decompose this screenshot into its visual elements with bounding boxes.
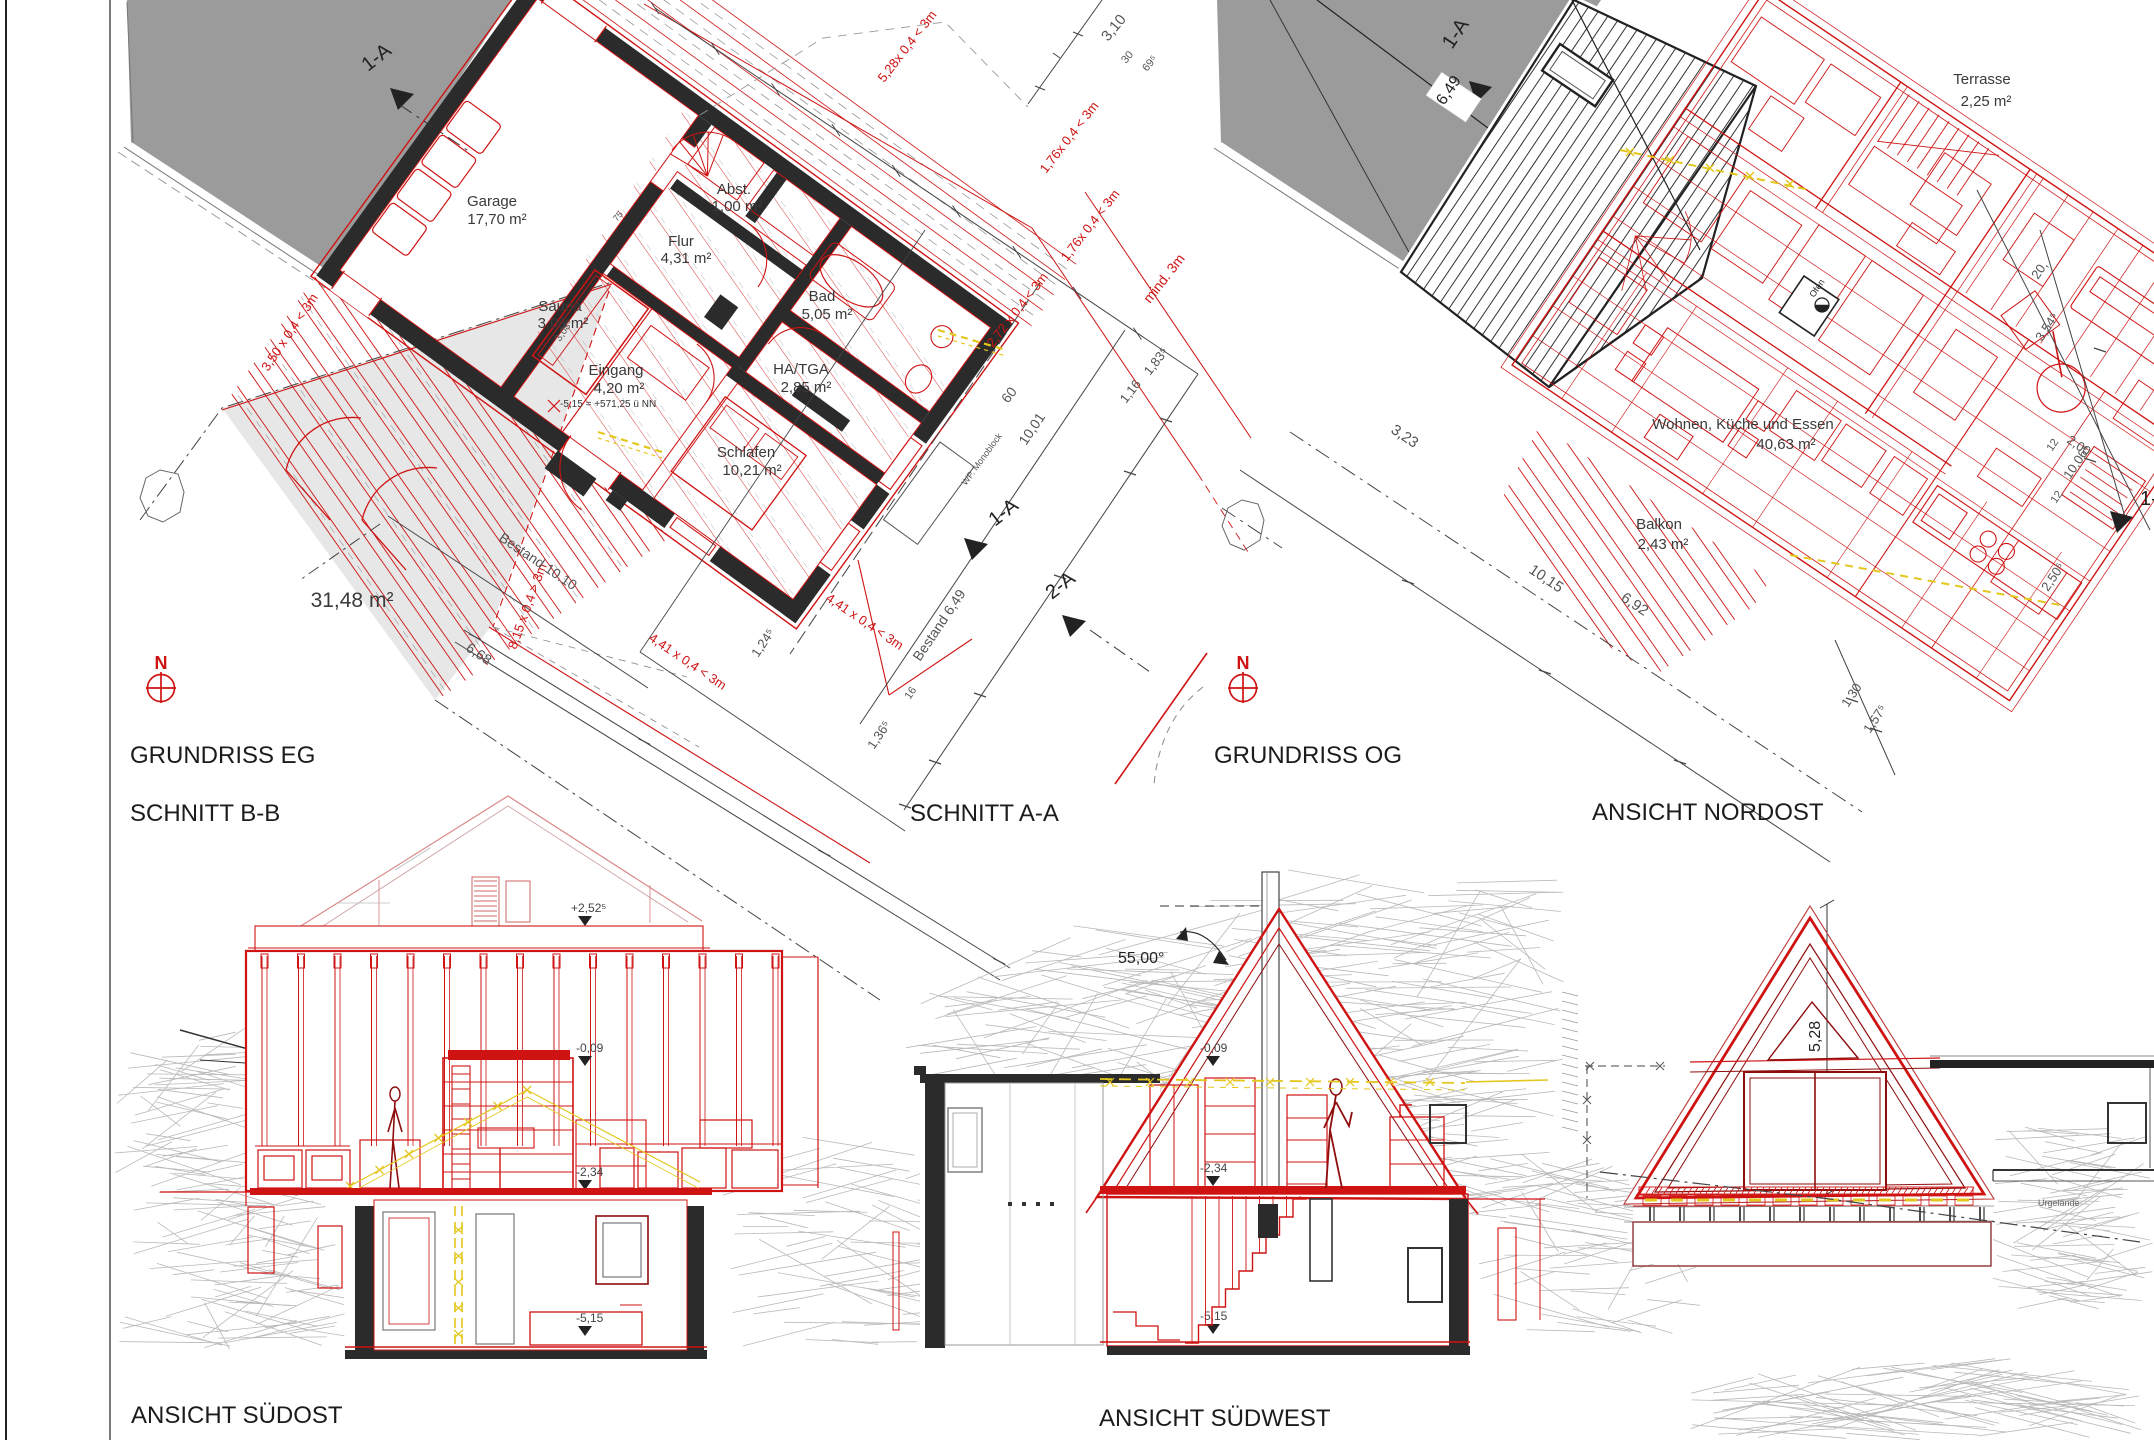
svg-text:N: N [155,653,168,673]
svg-text:-5,15 = +571,25 ü NN: -5,15 = +571,25 ü NN [560,399,656,410]
svg-text:-2,34: -2,34 [1200,1161,1228,1175]
svg-text:-5,15: -5,15 [1200,1309,1228,1323]
svg-text:Abst.: Abst. [717,181,751,198]
svg-text:HA/TGA: HA/TGA [773,361,829,378]
svg-text:2,25 m²: 2,25 m² [1961,93,2012,110]
svg-text:40,63 m²: 40,63 m² [1756,436,1815,453]
svg-text:17,70 m²: 17,70 m² [467,211,526,228]
svg-text:Balkon: Balkon [1636,516,1682,533]
svg-text:Garage: Garage [467,193,517,210]
svg-text:ANSICHT SÜDWEST: ANSICHT SÜDWEST [1099,1405,1331,1432]
svg-text:ANSICHT NORDOST: ANSICHT NORDOST [1592,799,1824,826]
svg-text:GRUNDRISS OG: GRUNDRISS OG [1214,742,1402,769]
svg-text:-0,09: -0,09 [1200,1041,1228,1055]
svg-text:4,20 m²: 4,20 m² [594,380,645,397]
svg-text:4,31 m²: 4,31 m² [661,250,712,267]
svg-text:2,85 m²: 2,85 m² [781,379,832,396]
svg-text:+2,52⁵: +2,52⁵ [571,901,606,915]
svg-text:5,05 m²: 5,05 m² [802,306,853,323]
svg-text:Eingang: Eingang [588,362,643,379]
svg-text:Terrasse: Terrasse [1953,71,2011,88]
svg-text:N: N [1237,653,1250,673]
svg-text:-5,15: -5,15 [576,1311,604,1325]
svg-text:10,21 m²: 10,21 m² [722,462,781,479]
svg-text:5,28: 5,28 [1807,1021,1824,1052]
svg-text:Urgelände: Urgelände [2038,1198,2080,1208]
svg-text:ANSICHT SÜDOST: ANSICHT SÜDOST [131,1402,343,1429]
svg-text:Sauna: Sauna [538,298,582,315]
svg-text:GRUNDRISS EG: GRUNDRISS EG [130,742,315,769]
svg-text:Flur: Flur [668,233,694,250]
svg-text:1,00 m²: 1,00 m² [712,198,763,215]
svg-text:SCHNITT B-B: SCHNITT B-B [130,800,280,827]
svg-text:-0,09: -0,09 [576,1041,604,1055]
svg-text:31,48 m²: 31,48 m² [311,589,394,612]
svg-text:SCHNITT A-A: SCHNITT A-A [910,800,1059,827]
svg-text:55,00°: 55,00° [1118,950,1164,967]
svg-text:Schlafen: Schlafen [717,444,775,461]
svg-text:1-A: 1-A [2140,488,2154,510]
svg-text:Wohnen, Küche und Essen: Wohnen, Küche und Essen [1652,416,1834,433]
svg-text:Bad: Bad [809,288,836,305]
svg-text:2,43 m²: 2,43 m² [1638,536,1689,553]
svg-text:-2,34: -2,34 [576,1165,604,1179]
